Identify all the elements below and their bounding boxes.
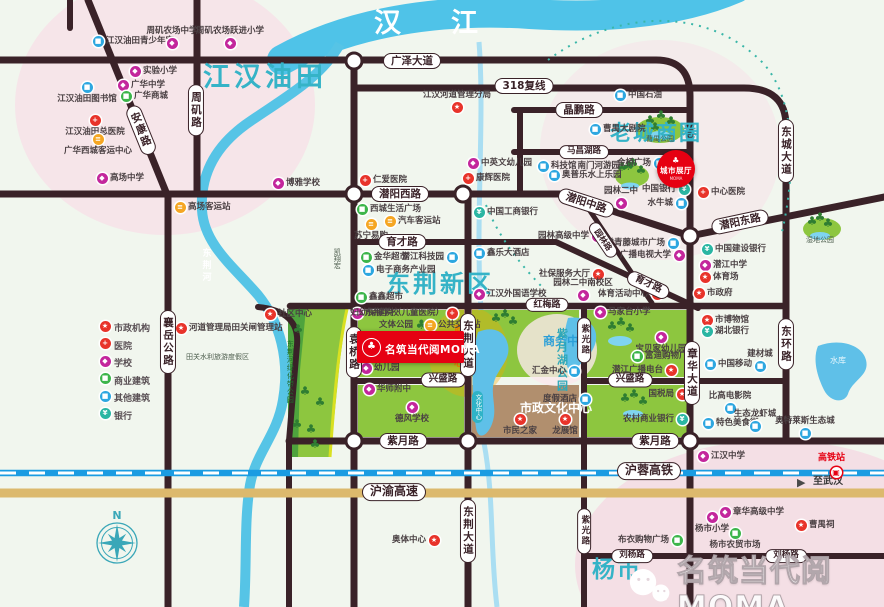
tree-icon: ♣ [666,114,677,128]
pond [810,232,830,240]
road-junction [455,186,471,202]
project-name: 名筑当代阅MOMA [385,342,480,357]
dashed-path [486,205,543,288]
tree-icon: ♣ [625,321,636,335]
project-logo-icon: ♣ [362,338,381,357]
road-junction [460,433,476,449]
park-block [587,310,689,377]
city-hall-label: 城市展厅 [660,165,692,176]
road-junction [346,186,362,202]
tree-icon: ♣ [650,120,661,134]
tree-icon: ♣ [310,437,321,451]
road-junction [682,433,698,449]
project-banner: ♣ 名筑当代阅MOMA [357,331,464,363]
park-block [358,385,464,437]
city-hall-sublabel: MOMA [670,176,683,181]
road-junction [346,53,362,69]
tree-icon: ♣ [300,384,311,398]
compass-n: N [112,509,121,522]
tree-icon: ♣ [508,314,519,328]
lake [816,342,867,400]
pond [621,183,639,190]
banner-tagline-rule [419,339,463,340]
tree-icon: ♣ [617,160,628,174]
compass: N [97,509,137,563]
watermark: 名筑当代阅MOMA [626,546,884,607]
map-canvas: ♣♣♣♣♣♣♣♣♣♣♣♣♣♣♣♣♣♣♣♣♣♣♣♣♣N [0,0,884,607]
watermark-text: 名筑当代阅MOMA [677,546,884,607]
road-junction [346,433,362,449]
city-exhibition-hall-badge: ♣ 城市展厅 MOMA [657,150,695,188]
wechat-icon [626,562,671,607]
stream [479,42,481,310]
stream [484,443,497,607]
pond [623,410,643,418]
tree-icon: ♣ [823,216,834,230]
pond [608,336,632,346]
tree-icon: ♣ [292,417,303,431]
tree-icon: ♣ [636,163,647,177]
location-map: ♣♣♣♣♣♣♣♣♣♣♣♣♣♣♣♣♣♣♣♣♣♣♣♣♣N 汉江江汉油田老城商圈东荆新… [0,0,884,607]
tree-icon: ♣ [293,322,304,336]
tree-icon: ♣ [306,422,317,436]
tree-icon: ♣ [638,394,649,408]
tree-icon: ♣ [315,395,326,409]
road-junction [682,228,698,244]
city-hall-tree-icon: ♣ [672,157,680,165]
